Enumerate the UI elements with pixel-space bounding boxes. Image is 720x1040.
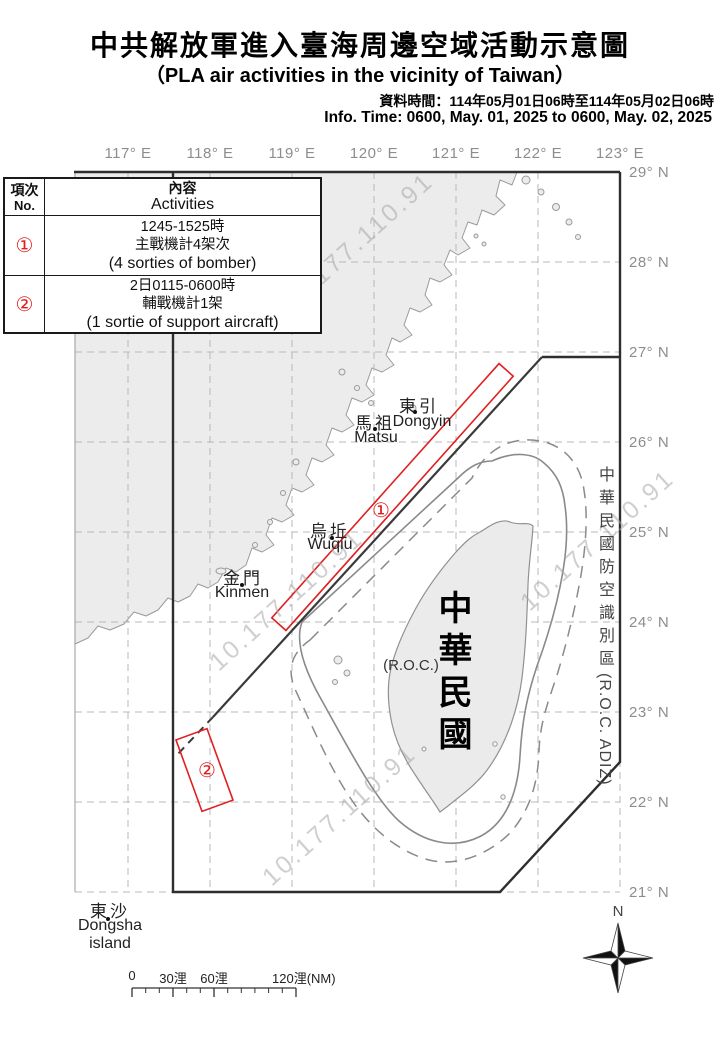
row2-number: ② xyxy=(16,292,34,317)
table-header-no: 項次 No. xyxy=(5,179,45,215)
table-row: ② 2日0115-0600時 輔戰機計1架 (1 sortie of suppo… xyxy=(5,275,320,332)
compass-rose-icon xyxy=(583,923,653,993)
lat-label: 25° N xyxy=(629,524,679,541)
pla-activity-map-page: 10.177.110.91 10.177.110.91 10.177.110.9… xyxy=(0,0,720,1040)
scale-label-120: 120浬(NM) xyxy=(272,968,366,987)
dongsha-label-en2: island xyxy=(70,935,150,953)
page-title: 中共解放軍進入臺海周邊空域活動示意圖 xyxy=(0,24,720,64)
header-content-zh: 內容 xyxy=(169,180,197,196)
roc-paren-label: (R.O.C.) xyxy=(366,657,456,674)
lat-label: 22° N xyxy=(629,794,679,811)
row1-number: ① xyxy=(16,233,34,258)
row1-line2: 主戰機計4架次 xyxy=(135,236,230,254)
header-no-zh: 項次 xyxy=(11,182,39,198)
row2-activity: 2日0115-0600時 輔戰機計1架 (1 sortie of support… xyxy=(45,276,320,332)
lat-label: 24° N xyxy=(629,614,679,631)
matsu-label-en: Matsu xyxy=(336,429,416,447)
lat-label: 26° N xyxy=(629,434,679,451)
scale-label-60: 60浬 xyxy=(189,968,239,987)
wuqiu-label-en: Wuqiu xyxy=(290,536,370,554)
lon-label: 121° E xyxy=(430,145,482,162)
adiz-vertical-label: 中華民國防空識別區(R.O.C. ADIZ) xyxy=(595,466,613,870)
adiz-label-zh: 中華民國防空識別區 xyxy=(596,466,613,673)
header-content-en: Activities xyxy=(151,196,214,214)
kinmen-label-en: Kinmen xyxy=(202,584,282,602)
row1-line3: (4 sorties of bomber) xyxy=(109,254,257,273)
row2-line2: 輔戰機計1架 xyxy=(142,295,223,313)
lon-label: 120° E xyxy=(348,145,400,162)
row2-line3: (1 sortie of support aircraft) xyxy=(86,313,278,332)
table-row: ① 1245-1525時 主戰機計4架次 (4 sorties of bombe… xyxy=(5,215,320,275)
lat-label: 28° N xyxy=(629,254,679,271)
lat-label: 21° N xyxy=(629,884,679,901)
activity-table: 項次 No. 內容 Activities ① 1245-1525時 主戰機計4架… xyxy=(3,177,322,334)
lon-label: 123° E xyxy=(594,145,646,162)
page-subtitle: （PLA air activities in the vicinity of T… xyxy=(0,59,720,88)
dongsha-label-en: Dongsha xyxy=(70,917,150,935)
adiz-label-en: (R.O.C. ADIZ) xyxy=(596,673,613,786)
scale-bar xyxy=(132,988,296,997)
row1-line1: 1245-1525時 xyxy=(141,218,225,236)
table-header-row: 項次 No. 內容 Activities xyxy=(5,179,320,215)
scale-label-0: 0 xyxy=(122,968,142,983)
lat-label: 29° N xyxy=(629,164,679,181)
row1-activity: 1245-1525時 主戰機計4架次 (4 sorties of bomber) xyxy=(45,216,320,275)
activity-marker-2: ② xyxy=(195,758,219,783)
lat-label: 23° N xyxy=(629,704,679,721)
row2-line1: 2日0115-0600時 xyxy=(130,277,235,295)
header-no-en: No. xyxy=(14,198,35,213)
penghu-islands xyxy=(333,656,351,685)
lat-label: 27° N xyxy=(629,344,679,361)
lon-label: 118° E xyxy=(184,145,236,162)
table-header-activities: 內容 Activities xyxy=(45,179,320,215)
activity-marker-1: ① xyxy=(369,498,393,523)
info-time-en: Info. Time: 0600, May. 01, 2025 to 0600,… xyxy=(324,109,712,127)
compass-north-label: N xyxy=(606,903,630,920)
lon-label: 122° E xyxy=(512,145,564,162)
lon-label: 117° E xyxy=(102,145,154,162)
roc-name-vertical: 中華民國 xyxy=(428,590,477,758)
info-time-zh: 資料時間：114年05月01日06時至114年05月02日06時 xyxy=(379,91,714,111)
lon-label: 119° E xyxy=(266,145,318,162)
